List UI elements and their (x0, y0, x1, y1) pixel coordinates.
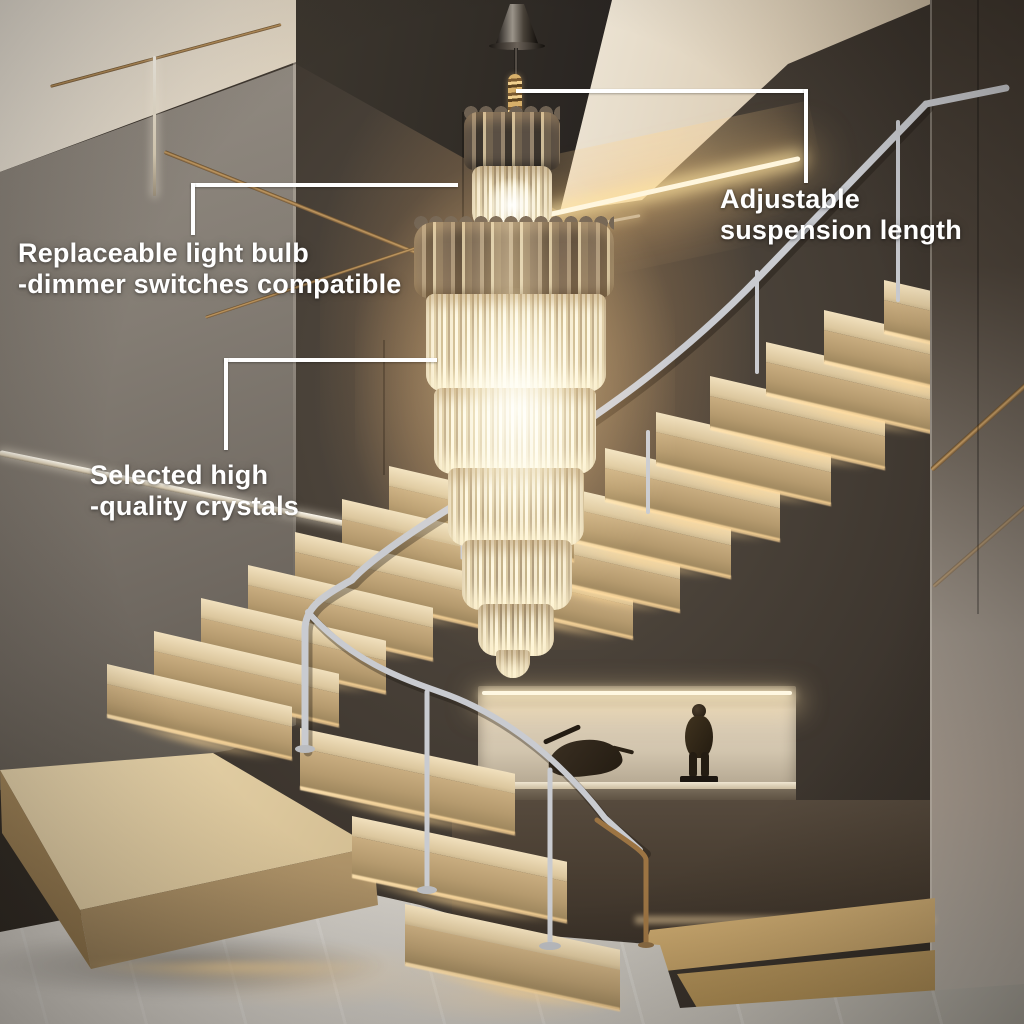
annotation-label-adjustable-suspension: Adjustable suspension length (720, 184, 962, 246)
annotation-text-line: Selected high (90, 460, 299, 491)
annotation-label-replaceable-bulb: Replaceable light bulb -dimmer switches … (18, 238, 402, 300)
annotation-label-selected-crystals: Selected high -quality crystals (90, 460, 299, 522)
callout-line-replaceable-bulb-v (191, 183, 195, 235)
callout-line-selected-crystals-v (224, 358, 228, 450)
callout-line-selected-crystals-h (224, 358, 437, 362)
callout-line-adjustable-suspension-h (516, 89, 808, 93)
callout-line-replaceable-bulb-h (191, 183, 458, 187)
annotation-text-line: suspension length (720, 215, 962, 246)
annotation-text-line: Adjustable (720, 184, 962, 215)
product-photo-staircase-chandelier: Replaceable light bulb -dimmer switches … (0, 0, 1024, 1024)
callout-line-adjustable-suspension-v (804, 89, 808, 183)
annotation-text-line: -dimmer switches compatible (18, 269, 402, 300)
annotation-text-line: -quality crystals (90, 491, 299, 522)
annotation-text-line: Replaceable light bulb (18, 238, 402, 269)
